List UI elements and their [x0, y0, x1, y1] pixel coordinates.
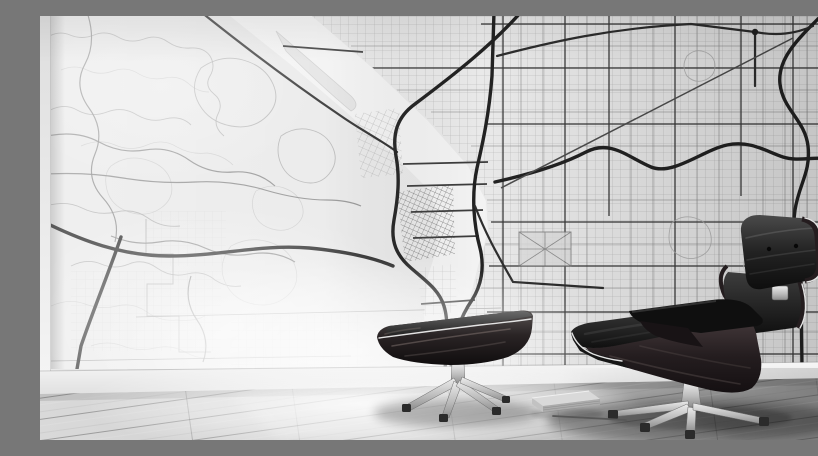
ottoman-foot-glide [492, 407, 501, 415]
chair-foot-glide [640, 423, 650, 432]
interior-photo: Interior photo: monochrome city street-m… [40, 16, 818, 440]
headrest-button [767, 247, 771, 251]
chair-foot-glide [759, 417, 769, 426]
headrest-bracket [772, 286, 788, 300]
ottoman-foot-glide [439, 414, 448, 422]
ottoman-foot-glide [502, 396, 510, 403]
ottoman-foot-glide [402, 404, 411, 412]
chair-headrest [741, 215, 818, 289]
chair-foot-glide [685, 430, 695, 439]
wall-left [40, 16, 51, 378]
top-shade [40, 16, 818, 62]
chair-leg [686, 407, 696, 432]
headrest-button [794, 244, 798, 248]
chair-foot-glide [608, 410, 618, 419]
